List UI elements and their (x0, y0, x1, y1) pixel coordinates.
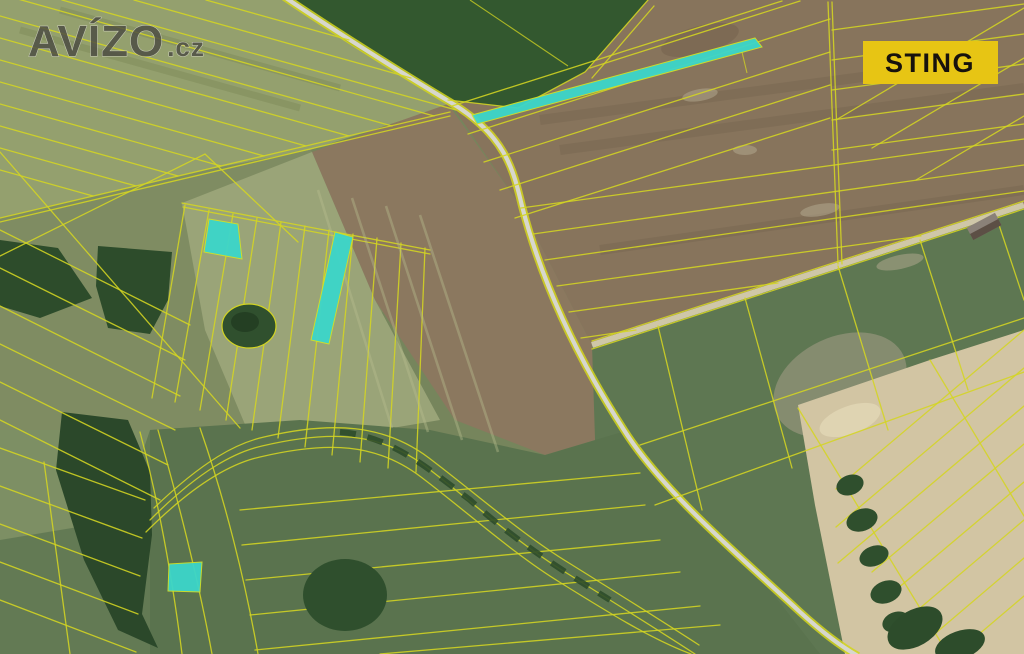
sting-badge: STING (863, 41, 998, 84)
texture-light-patch (733, 145, 757, 155)
tree-clump-core (231, 312, 259, 332)
aerial-cadastral-map: AVÍZO.cz STING (0, 0, 1024, 654)
screenshot-root: AVÍZO.cz STING (0, 0, 1024, 654)
highlighted-parcel-west-parallelogram (204, 219, 242, 259)
sting-badge-label: STING (885, 48, 975, 78)
highlighted-parcel-south-quad (168, 562, 202, 592)
watermark-tld: .cz (167, 32, 205, 62)
watermark-brand: AVÍZO (28, 16, 164, 66)
tree-blob-bottom-center (303, 559, 387, 631)
